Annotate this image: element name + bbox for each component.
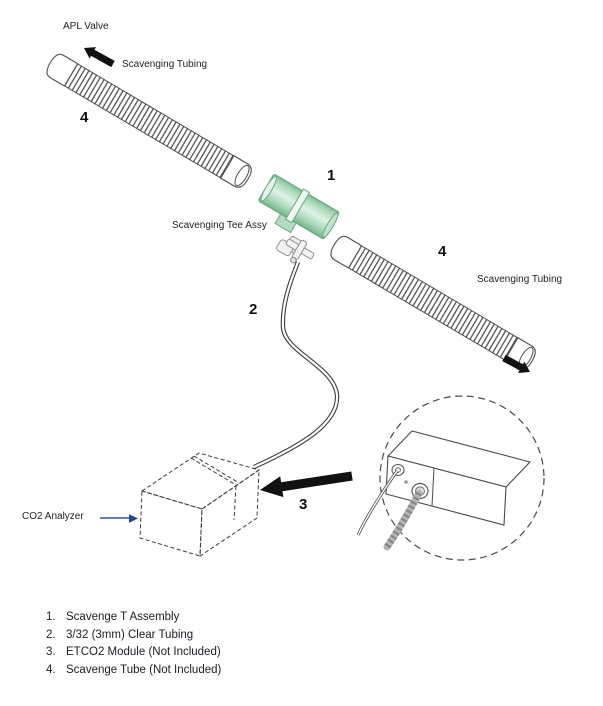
callout-2: 2	[249, 301, 257, 318]
legend-item-3: 3. ETCO2 Module (Not Included)	[46, 646, 221, 658]
co2-analyzer-box	[140, 453, 259, 556]
legend-item-text: Scavenge Tube (Not Included)	[66, 664, 221, 676]
legend-item-2: 2. 3/32 (3mm) Clear Tubing	[46, 629, 221, 641]
legend-item-4: 4. Scavenge Tube (Not Included)	[46, 664, 221, 676]
scavenge-tube-left	[44, 51, 255, 190]
etco2-module-detail	[358, 431, 530, 547]
legend-item-number: 1.	[46, 611, 66, 623]
legend: 1. Scavenge T Assembly 2. 3/32 (3mm) Cle…	[46, 611, 221, 681]
legend-item-number: 4.	[46, 664, 66, 676]
scavenge-tube-right	[328, 233, 539, 372]
module-connection-arrow-icon	[260, 472, 353, 498]
scavenging-assembly-diagram	[0, 0, 603, 706]
co2-analyzer-pointer-icon	[100, 514, 138, 523]
callout-4-left: 4	[80, 109, 88, 126]
module-screw	[404, 480, 408, 484]
legend-item-text: ETCO2 Module (Not Included)	[66, 646, 221, 658]
callout-3: 3	[299, 496, 307, 513]
clear-tubing	[254, 262, 337, 467]
diagram-canvas: APL Valve Scavenging Tubing Scavenging T…	[0, 0, 603, 706]
scavenging-tee-assy-label: Scavenging Tee Assy	[172, 220, 267, 231]
flow-arrow-up-left-icon	[84, 47, 115, 67]
legend-item-number: 3.	[46, 646, 66, 658]
co2-analyzer-label: CO2 Analyzer	[22, 511, 84, 522]
callout-1: 1	[327, 167, 335, 184]
apl-valve-label: APL Valve	[63, 21, 109, 32]
scavenging-tubing-right-label: Scavenging Tubing	[477, 274, 562, 285]
callout-4-right: 4	[438, 243, 446, 260]
legend-item-text: Scavenge T Assembly	[66, 611, 179, 623]
legend-item-number: 2.	[46, 629, 66, 641]
legend-item-1: 1. Scavenge T Assembly	[46, 611, 221, 623]
legend-item-text: 3/32 (3mm) Clear Tubing	[66, 629, 193, 641]
scavenging-tubing-left-label: Scavenging Tubing	[122, 59, 207, 70]
